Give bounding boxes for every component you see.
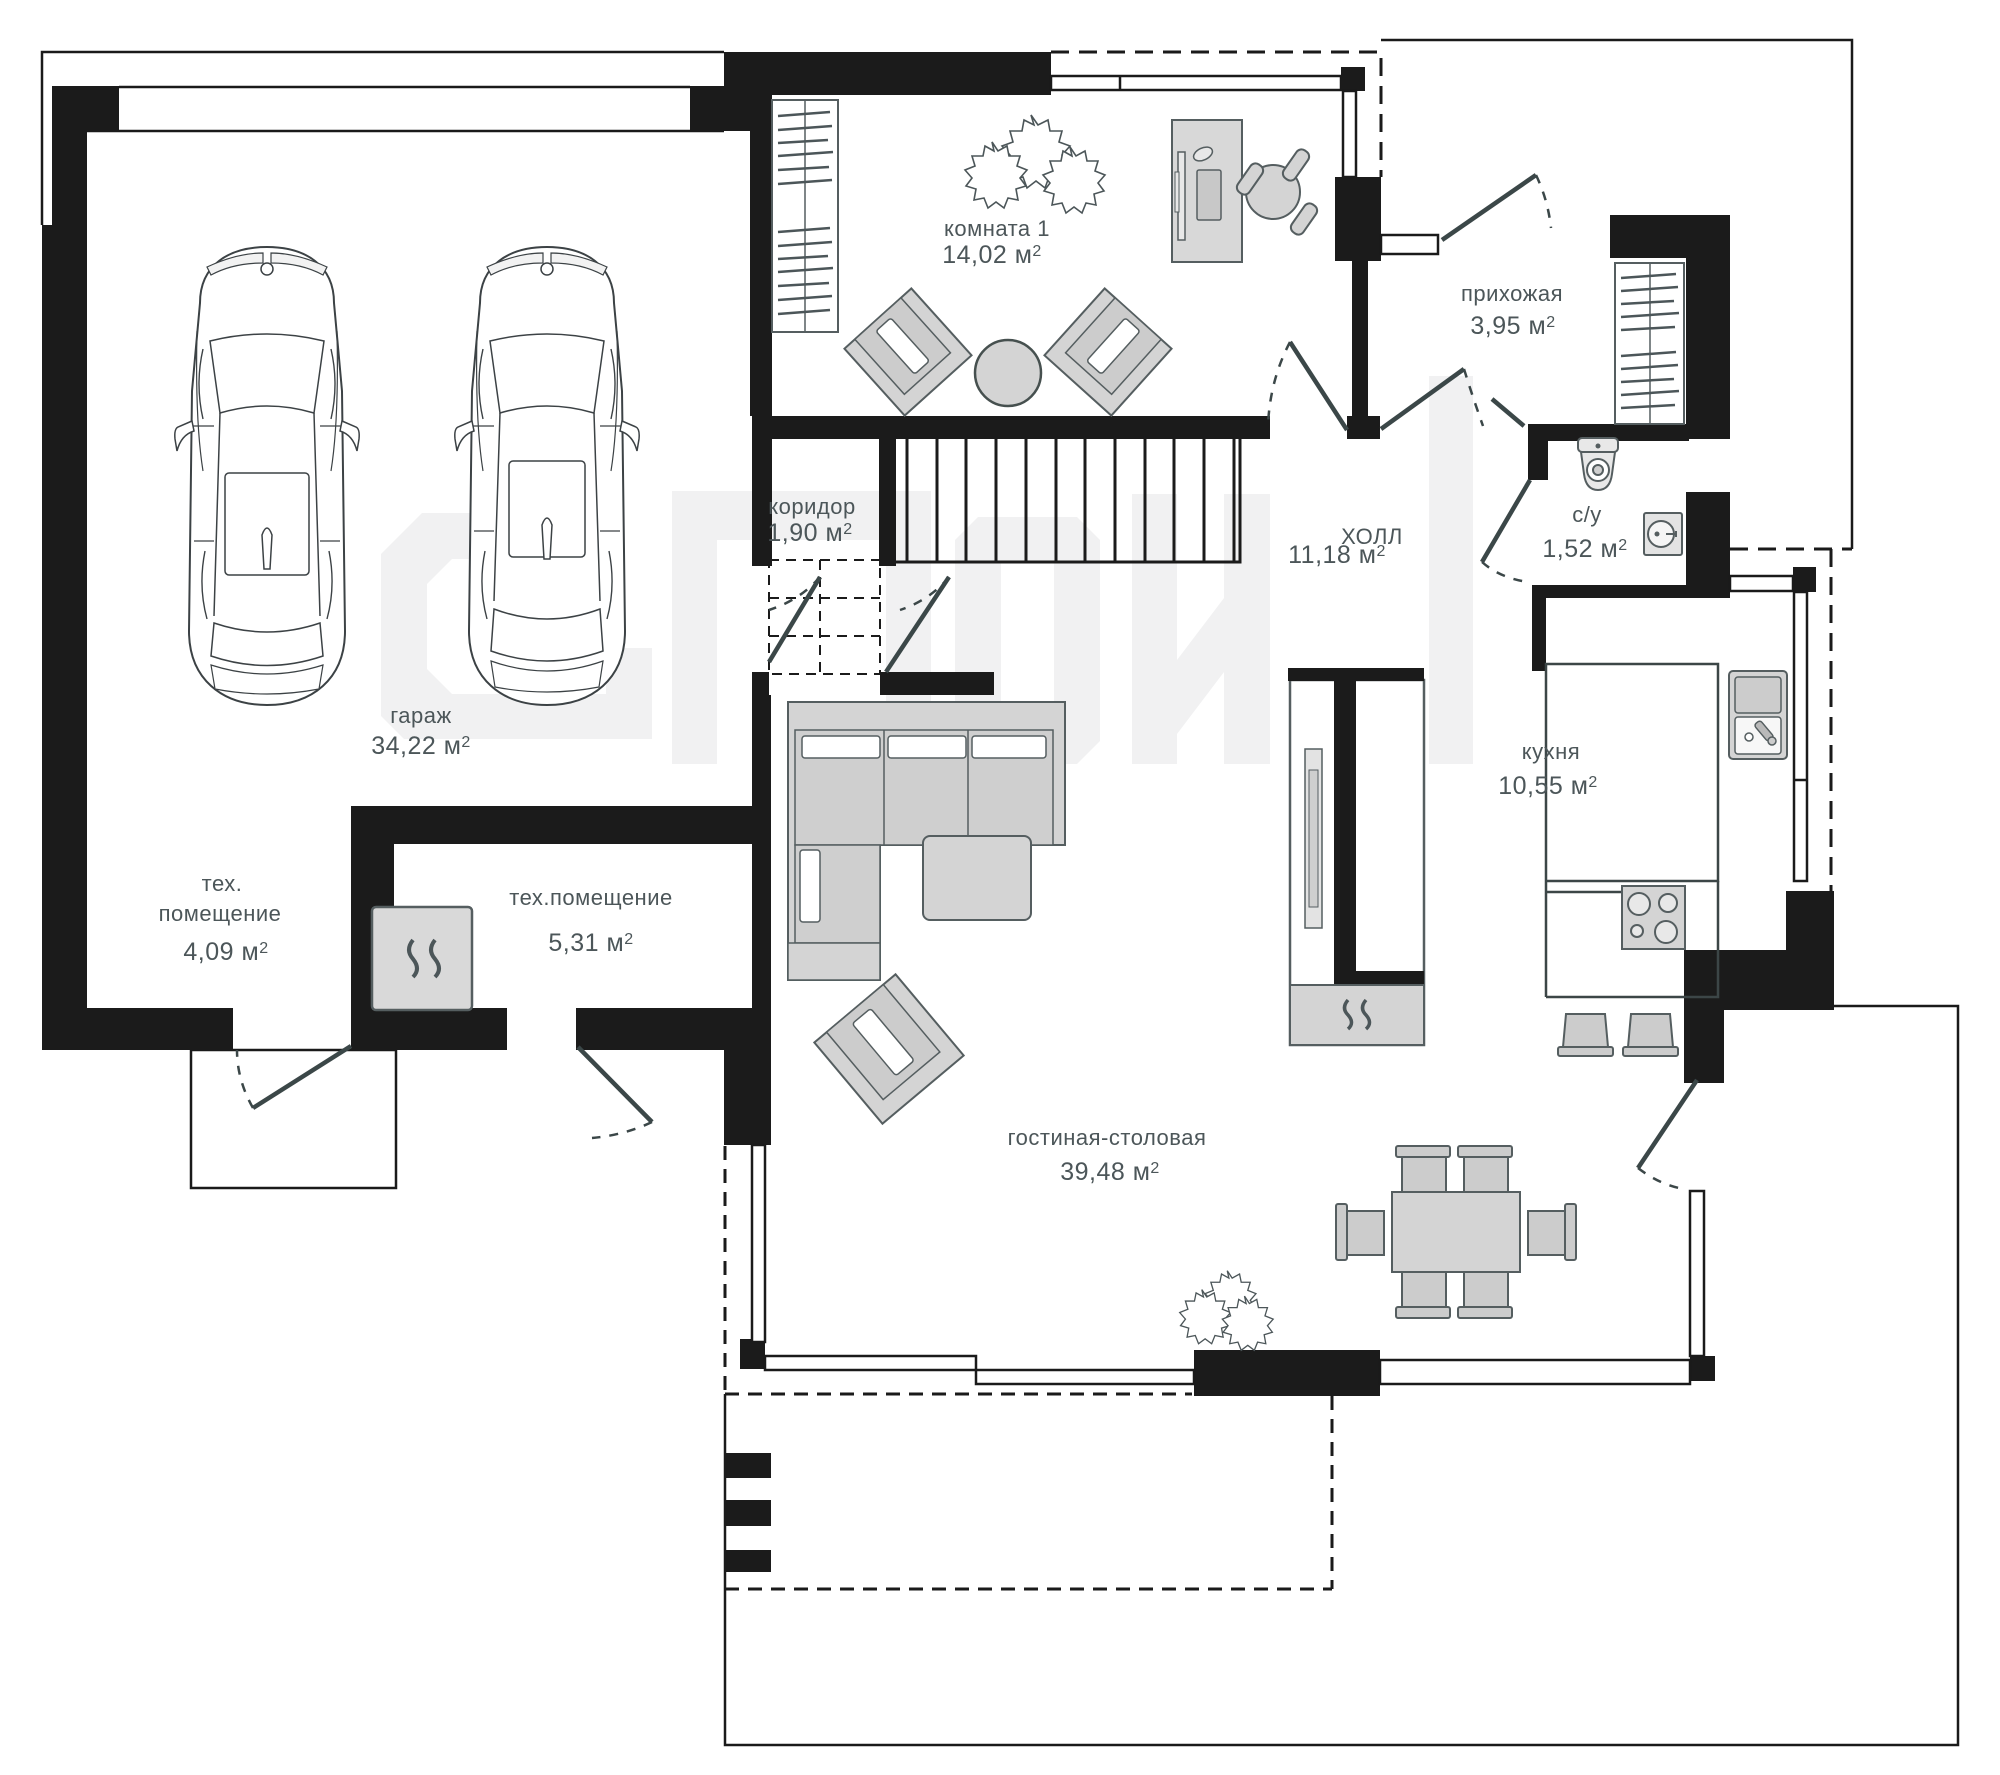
svg-text:5,31 м2: 5,31 м2 — [548, 929, 633, 957]
svg-text:10,55 м2: 10,55 м2 — [1498, 772, 1598, 800]
svg-text:коридор: коридор — [768, 494, 855, 519]
svg-text:тех.помещение: тех.помещение — [509, 885, 672, 910]
svg-text:39,48 м2: 39,48 м2 — [1060, 1158, 1160, 1186]
svg-text:14,02 м2: 14,02 м2 — [942, 241, 1042, 269]
svg-text:гараж: гараж — [390, 703, 451, 728]
svg-text:34,22 м2: 34,22 м2 — [371, 732, 471, 760]
svg-text:1,90 м2: 1,90 м2 — [767, 519, 852, 547]
svg-text:4,09 м2: 4,09 м2 — [183, 938, 268, 966]
svg-text:кухня: кухня — [1522, 739, 1580, 764]
svg-text:11,18 м2: 11,18 м2 — [1288, 541, 1386, 569]
svg-text:3,95 м2: 3,95 м2 — [1470, 312, 1555, 340]
svg-text:тех.: тех. — [202, 871, 243, 896]
svg-text:гостиная-столовая: гостиная-столовая — [1008, 1125, 1207, 1150]
svg-text:с/у: с/у — [1572, 502, 1602, 527]
svg-text:1,52 м2: 1,52 м2 — [1542, 535, 1627, 563]
svg-text:комната 1: комната 1 — [944, 216, 1050, 241]
svg-text:помещение: помещение — [159, 901, 282, 926]
svg-text:прихожая: прихожая — [1461, 281, 1563, 306]
